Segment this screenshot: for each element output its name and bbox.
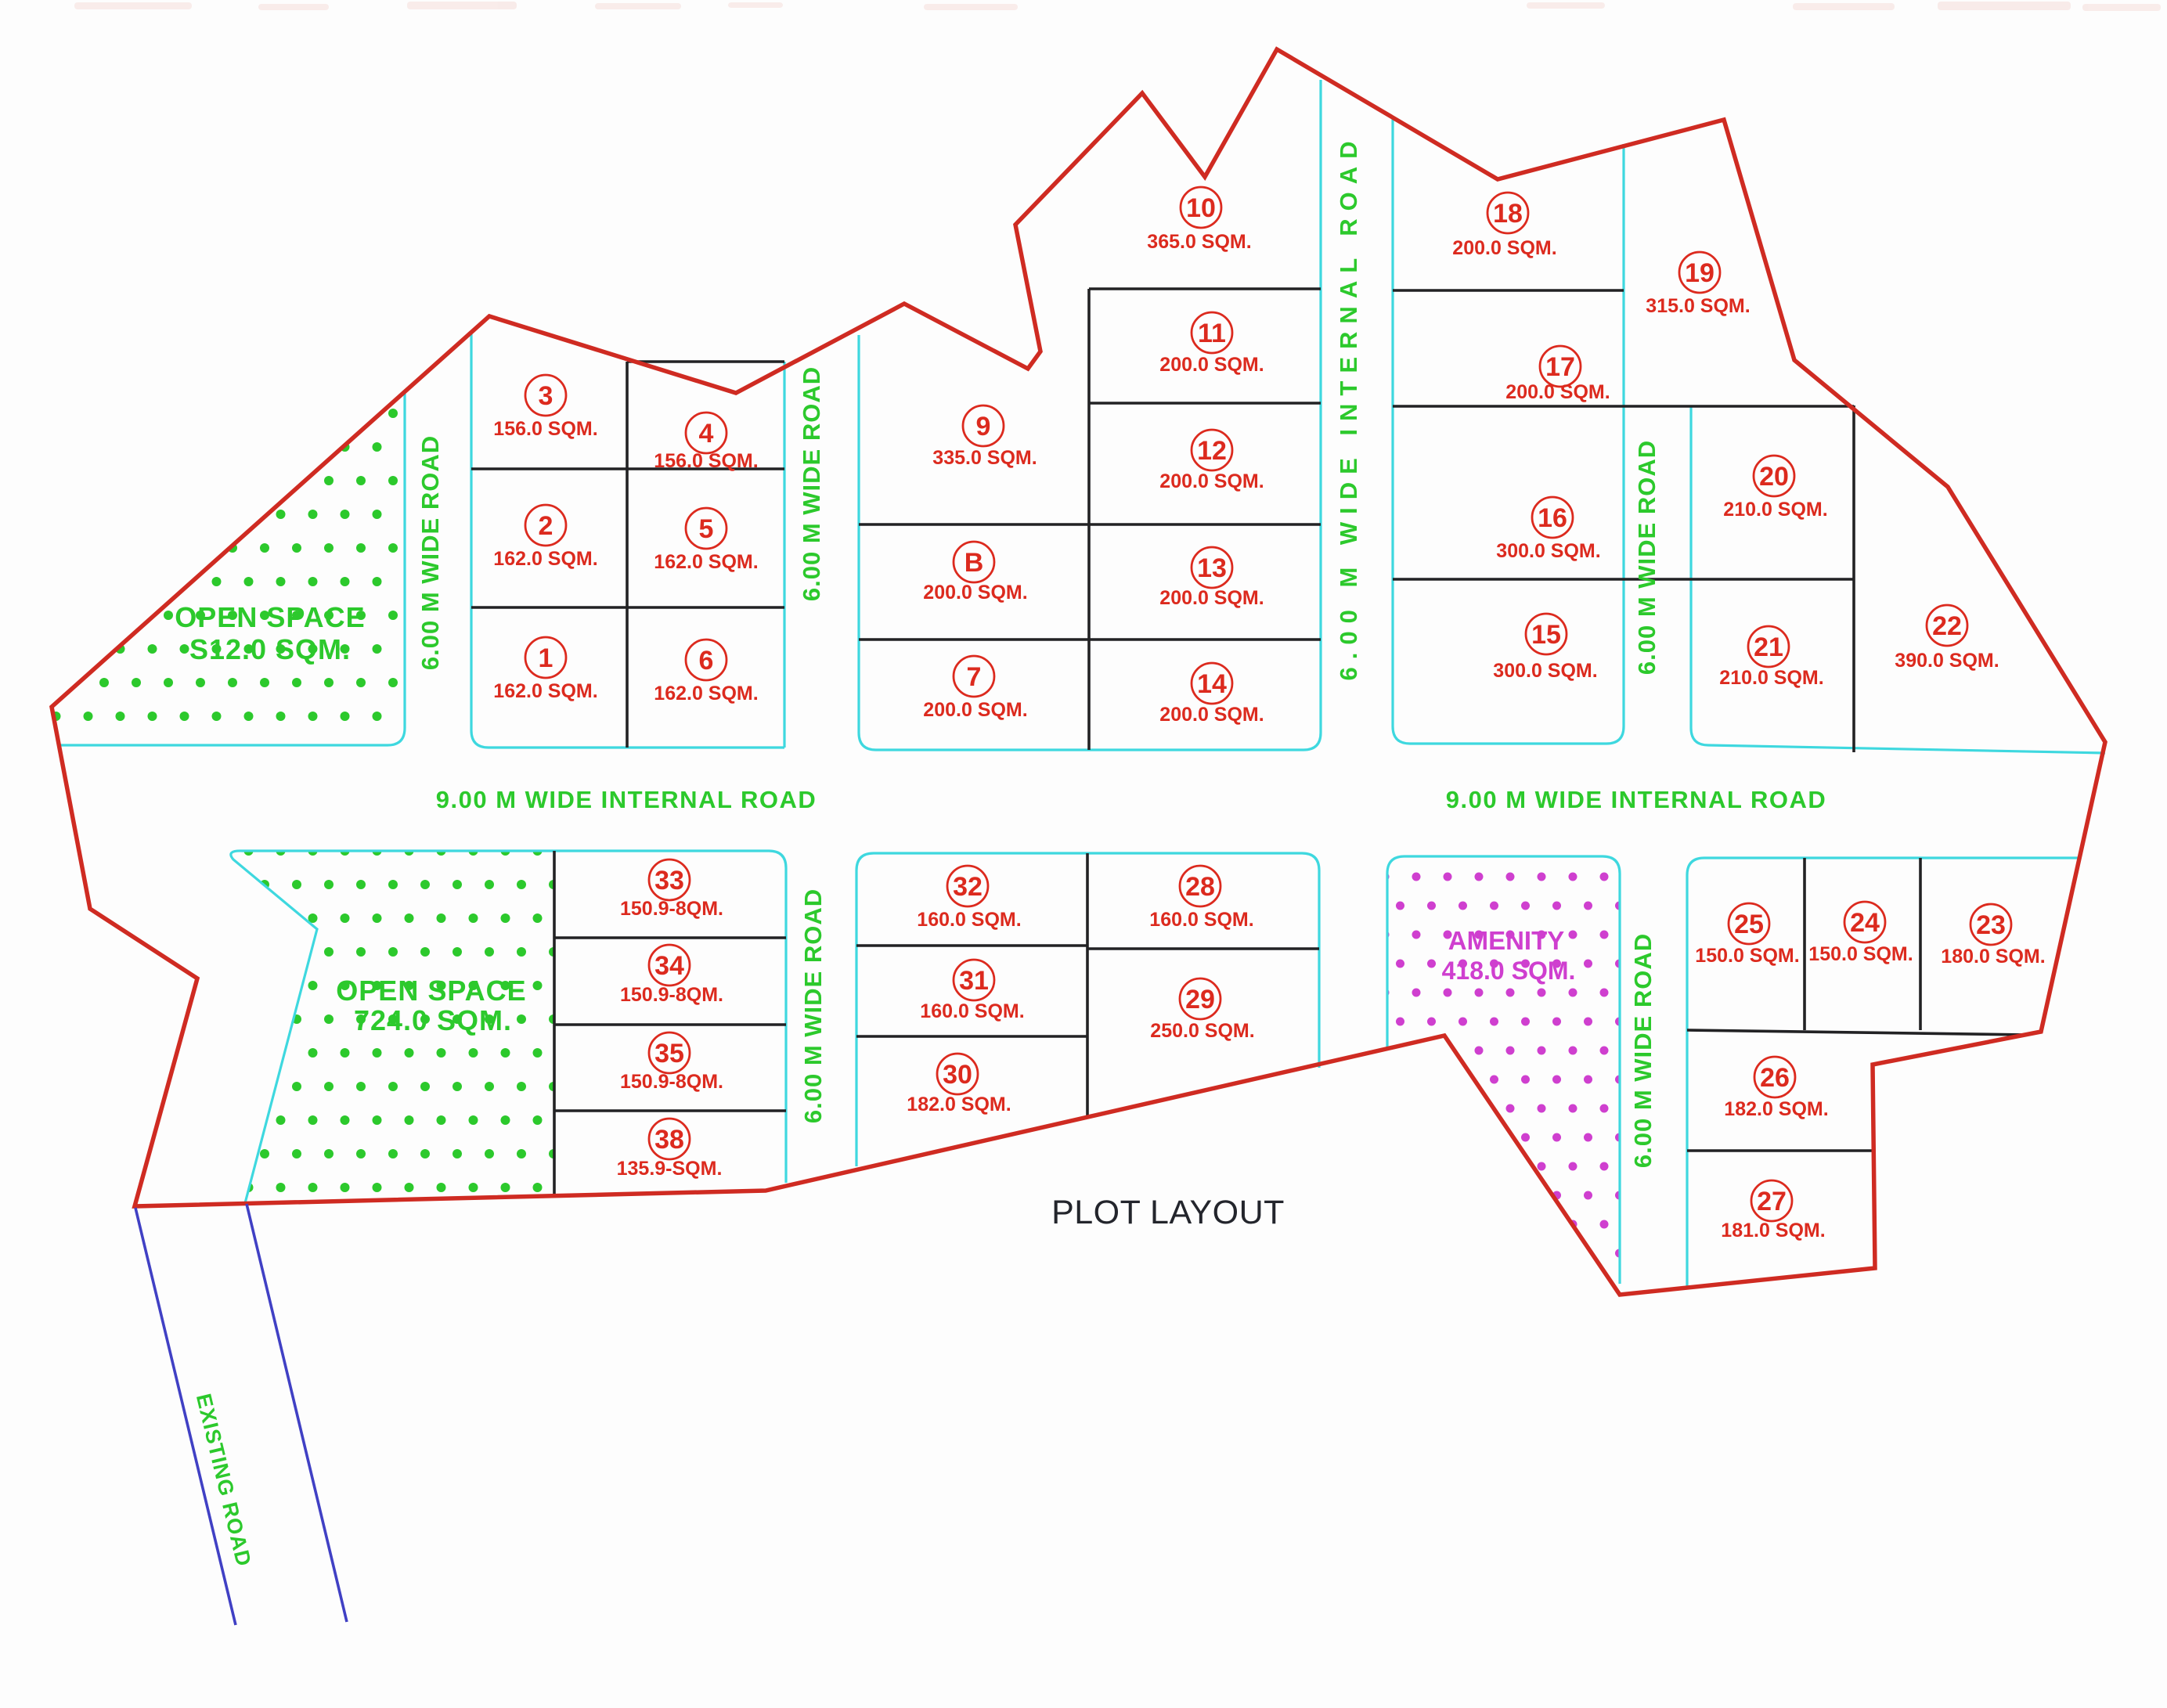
svg-text:OPEN SPACE: OPEN SPACE [175, 601, 365, 633]
svg-text:135.9-SQM.: 135.9-SQM. [617, 1158, 723, 1180]
svg-text:210.0 SQM.: 210.0 SQM. [1723, 499, 1827, 521]
svg-text:418.0 SQM.: 418.0 SQM. [1442, 957, 1576, 985]
svg-text:6.00 M WIDE INTERNAL ROAD: 6.00 M WIDE INTERNAL ROAD [1335, 134, 1362, 681]
svg-text:150.0 SQM.: 150.0 SQM. [1808, 943, 1913, 965]
svg-text:335.0 SQM.: 335.0 SQM. [932, 447, 1037, 469]
svg-text:19: 19 [1685, 258, 1714, 288]
svg-text:29: 29 [1185, 985, 1215, 1014]
svg-text:181.0 SQM.: 181.0 SQM. [1721, 1220, 1825, 1241]
svg-text:200.0 SQM.: 200.0 SQM. [923, 699, 1027, 721]
svg-text:300.0 SQM.: 300.0 SQM. [1493, 660, 1597, 682]
svg-text:6.00 M WIDE ROAD: 6.00 M WIDE ROAD [1633, 440, 1660, 675]
svg-text:162.0 SQM.: 162.0 SQM. [654, 683, 758, 704]
svg-text:160.0 SQM.: 160.0 SQM. [920, 1000, 1024, 1022]
svg-text:210.0 SQM.: 210.0 SQM. [1719, 667, 1823, 689]
svg-text:160.0 SQM.: 160.0 SQM. [1149, 909, 1253, 931]
svg-text:390.0 SQM.: 390.0 SQM. [1895, 650, 1999, 672]
svg-text:150.0 SQM.: 150.0 SQM. [1695, 945, 1799, 967]
svg-text:4: 4 [699, 419, 714, 449]
svg-text:9.00 M WIDE INTERNAL ROAD: 9.00 M WIDE INTERNAL ROAD [436, 786, 817, 813]
svg-text:724.0 SQM.: 724.0 SQM. [354, 1004, 512, 1036]
svg-text:162.0 SQM.: 162.0 SQM. [654, 551, 758, 573]
svg-text:200.0 SQM.: 200.0 SQM. [1452, 237, 1556, 259]
svg-text:156.0 SQM.: 156.0 SQM. [493, 418, 597, 440]
svg-text:7: 7 [967, 662, 982, 692]
svg-text:15: 15 [1531, 620, 1561, 650]
svg-text:6.00 M WIDE ROAD: 6.00 M WIDE ROAD [798, 366, 825, 601]
svg-text:12: 12 [1197, 436, 1227, 466]
svg-text:28: 28 [1185, 872, 1215, 902]
svg-text:14: 14 [1197, 669, 1227, 699]
svg-text:34: 34 [654, 951, 684, 981]
svg-text:6.00 M WIDE ROAD: 6.00 M WIDE ROAD [416, 435, 444, 670]
svg-text:22: 22 [1932, 611, 1962, 641]
svg-text:200.0 SQM.: 200.0 SQM. [923, 582, 1027, 604]
svg-text:18: 18 [1493, 199, 1523, 229]
svg-text:6.00 M WIDE ROAD: 6.00 M WIDE ROAD [799, 888, 827, 1123]
svg-text:200.0 SQM.: 200.0 SQM. [1505, 381, 1610, 403]
svg-text:365.0 SQM.: 365.0 SQM. [1147, 231, 1251, 253]
svg-text:30: 30 [943, 1060, 972, 1090]
svg-text:11: 11 [1198, 319, 1226, 348]
svg-text:180.0 SQM.: 180.0 SQM. [1941, 946, 2045, 968]
svg-text:2: 2 [539, 511, 553, 541]
svg-text:OPEN SPACE: OPEN SPACE [336, 975, 526, 1007]
svg-text:13: 13 [1197, 553, 1227, 583]
svg-text:17: 17 [1545, 352, 1575, 382]
svg-text:200.0 SQM.: 200.0 SQM. [1159, 354, 1264, 376]
svg-text:10: 10 [1186, 193, 1216, 223]
svg-text:35: 35 [654, 1039, 684, 1068]
svg-text:156.0 SQM.: 156.0 SQM. [654, 450, 758, 472]
svg-text:6.00 M WIDE ROAD: 6.00 M WIDE ROAD [1629, 933, 1657, 1168]
svg-text:1: 1 [539, 643, 553, 673]
svg-text:S12.0 SQM.: S12.0 SQM. [189, 633, 351, 665]
svg-text:162.0 SQM.: 162.0 SQM. [493, 548, 597, 570]
svg-text:162.0 SQM.: 162.0 SQM. [493, 680, 597, 702]
svg-text:38: 38 [654, 1125, 684, 1155]
svg-text:3: 3 [539, 381, 553, 411]
svg-text:PLOT LAYOUT: PLOT LAYOUT [1051, 1194, 1285, 1231]
svg-text:6: 6 [699, 646, 714, 676]
svg-text:AMENITY: AMENITY [1448, 926, 1565, 955]
svg-text:300.0 SQM.: 300.0 SQM. [1496, 540, 1600, 562]
svg-text:27: 27 [1757, 1187, 1787, 1216]
svg-text:150.9-8QM.: 150.9-8QM. [620, 1071, 723, 1093]
svg-text:16: 16 [1538, 503, 1567, 533]
svg-text:182.0 SQM.: 182.0 SQM. [907, 1094, 1011, 1115]
svg-text:250.0 SQM.: 250.0 SQM. [1150, 1020, 1254, 1042]
svg-text:21: 21 [1754, 632, 1783, 662]
svg-text:23: 23 [1976, 910, 2006, 940]
svg-text:200.0 SQM.: 200.0 SQM. [1159, 470, 1264, 492]
svg-text:31: 31 [959, 966, 989, 996]
svg-text:24: 24 [1850, 908, 1880, 938]
svg-text:25: 25 [1734, 910, 1764, 939]
svg-text:150.9-8QM.: 150.9-8QM. [620, 898, 723, 920]
svg-text:160.0 SQM.: 160.0 SQM. [917, 909, 1021, 931]
svg-text:9: 9 [976, 412, 991, 441]
svg-text:200.0 SQM.: 200.0 SQM. [1159, 704, 1264, 726]
svg-text:150.9-8QM.: 150.9-8QM. [620, 984, 723, 1006]
svg-text:20: 20 [1759, 462, 1789, 492]
svg-text:315.0 SQM.: 315.0 SQM. [1646, 295, 1750, 317]
svg-text:33: 33 [654, 866, 684, 895]
svg-text:32: 32 [953, 872, 983, 902]
svg-text:B: B [965, 548, 984, 578]
svg-text:182.0 SQM.: 182.0 SQM. [1724, 1098, 1828, 1120]
svg-text:9.00 M WIDE INTERNAL ROAD: 9.00 M WIDE INTERNAL ROAD [1446, 786, 1826, 813]
svg-text:5: 5 [699, 514, 714, 544]
svg-text:200.0 SQM.: 200.0 SQM. [1159, 587, 1264, 609]
svg-text:26: 26 [1760, 1063, 1790, 1093]
